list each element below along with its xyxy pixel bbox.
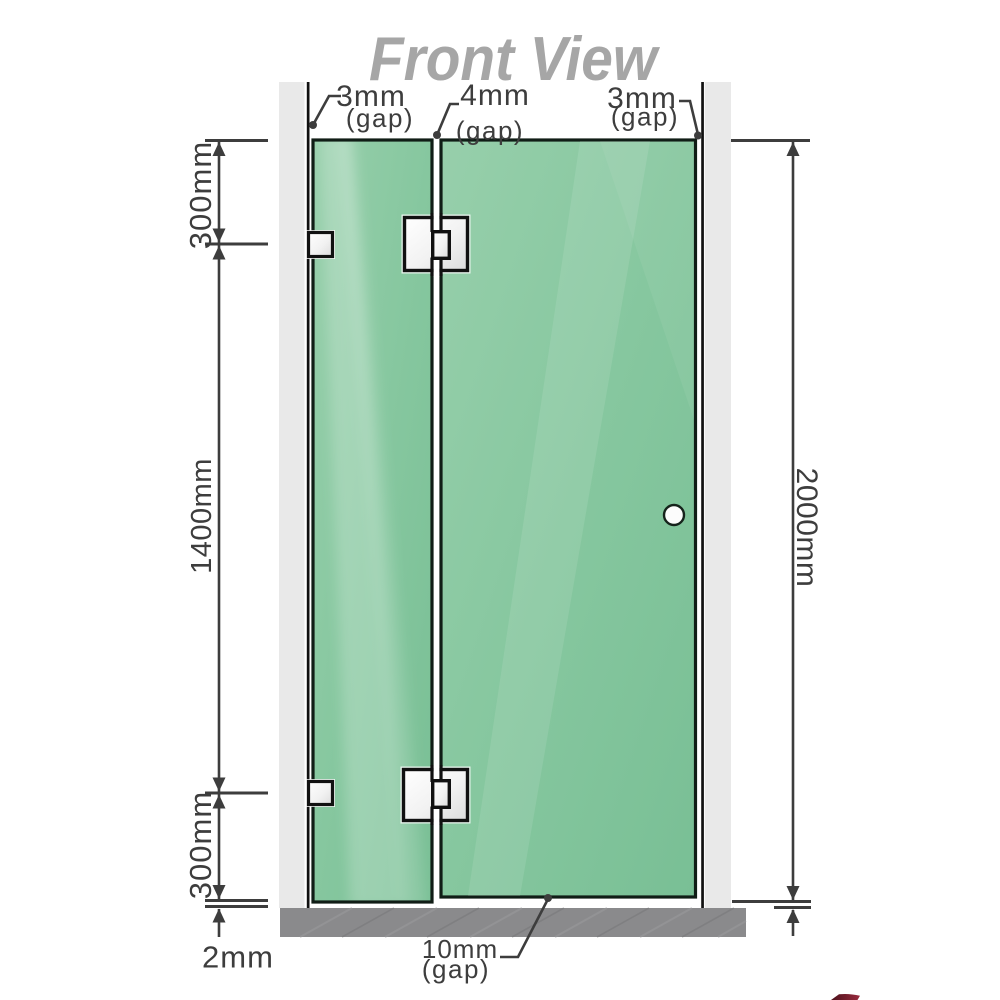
svg-text:2mm: 2mm: [202, 940, 274, 975]
svg-text:4mm: 4mm: [460, 79, 530, 112]
svg-text:300mm: 300mm: [183, 141, 218, 249]
svg-text:(gap): (gap): [456, 116, 524, 146]
svg-text:(gap): (gap): [346, 103, 414, 133]
svg-text:1400mm: 1400mm: [186, 458, 218, 574]
svg-text:(gap): (gap): [611, 102, 679, 132]
svg-text:2000mm: 2000mm: [790, 468, 823, 588]
svg-text:(gap): (gap): [422, 954, 490, 984]
svg-text:300mm: 300mm: [183, 791, 218, 899]
